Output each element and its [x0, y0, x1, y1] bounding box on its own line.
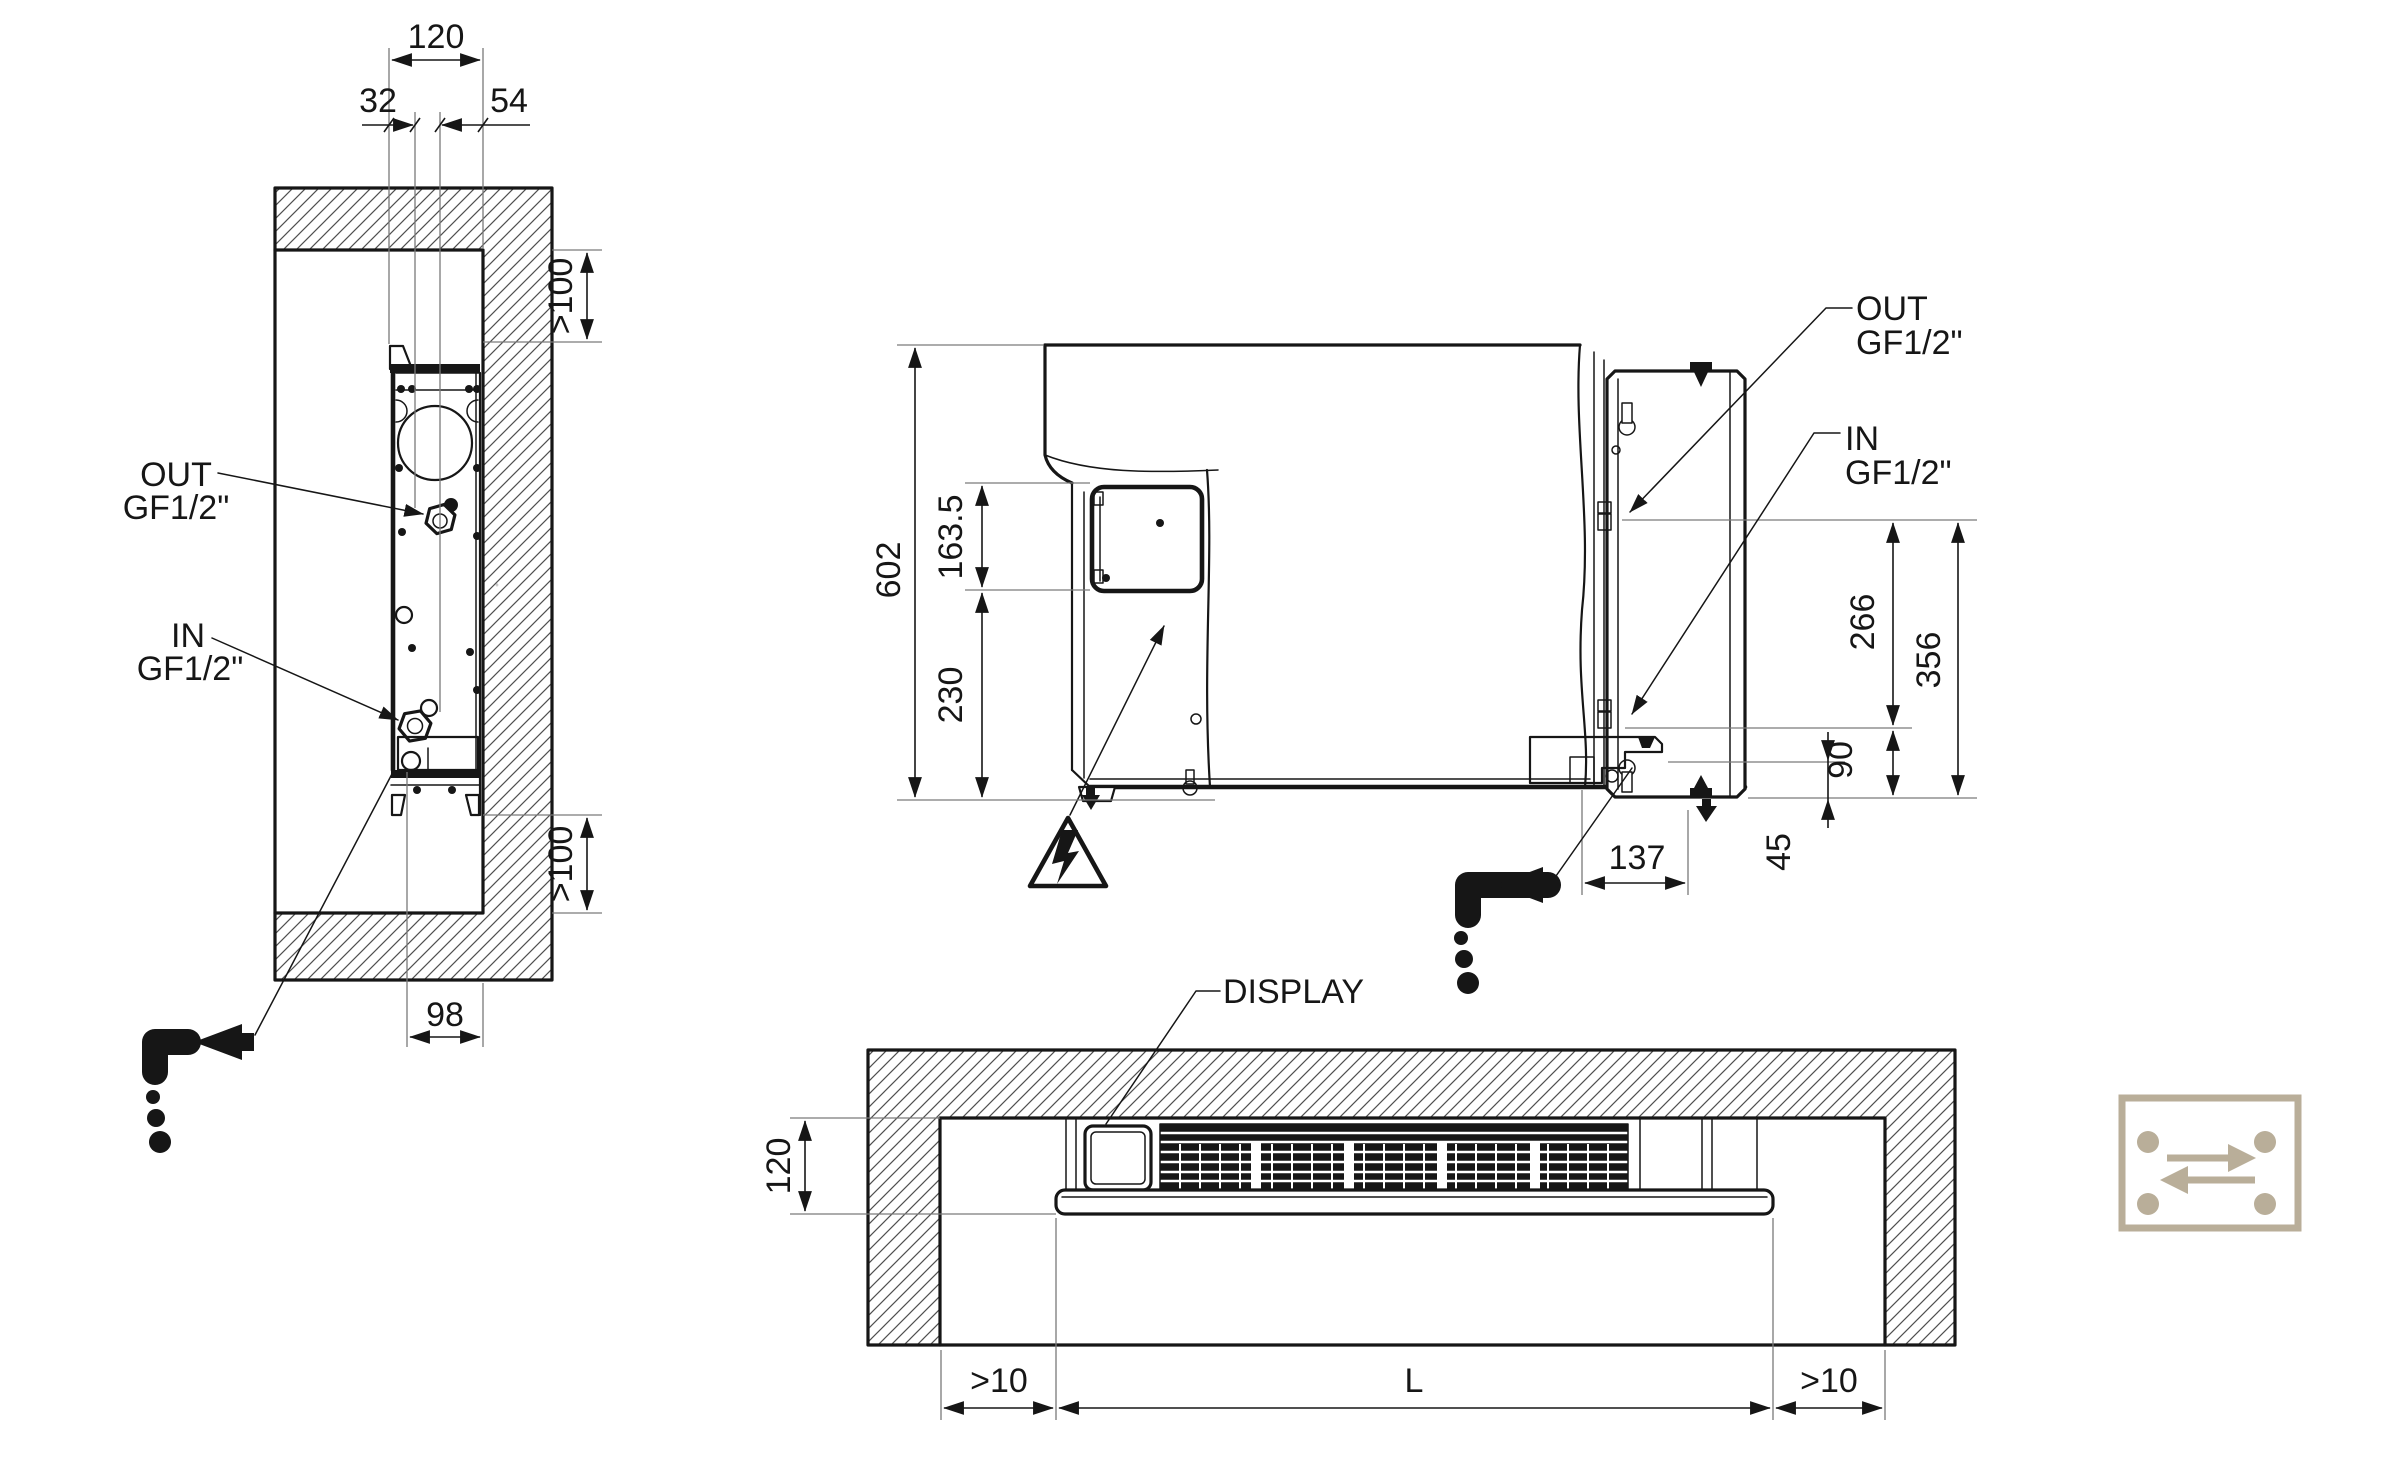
mounting-bracket	[1598, 362, 1745, 822]
break-line-right	[1578, 345, 1586, 787]
out-port-thread: GF1/2"	[123, 489, 230, 527]
in-pipe-circle	[421, 700, 437, 716]
dim-in-offset: 54	[490, 82, 528, 120]
front-panel-bar	[1056, 1190, 1773, 1214]
in-fitting-hex	[396, 706, 433, 746]
in-port-name: IN	[1845, 420, 1879, 458]
technical-drawing-canvas: 120 32 54 >100 >100 98 OUT GF1/2" IN GF1…	[0, 0, 2388, 1474]
dim-left-clearance: >10	[970, 1362, 1028, 1400]
dim-height: 602	[870, 542, 908, 599]
top-cap	[390, 364, 480, 373]
right-foot-arrow	[1696, 806, 1717, 822]
dim-bottom-clearance: >100	[542, 826, 580, 903]
dim-junction-box-bottom: 230	[932, 667, 970, 724]
dim-depth: 120	[408, 18, 465, 56]
dim-junction-box-height: 163.5	[932, 494, 970, 579]
pipe-knockout-hole	[398, 406, 472, 480]
dim-ports-span: 356	[1910, 632, 1948, 689]
in-port-thread: GF1/2"	[137, 650, 244, 688]
dim-recess-depth: 98	[426, 996, 464, 1034]
reversible-connections-icon	[2122, 1098, 2298, 1228]
display-box	[1085, 1126, 1151, 1190]
arrow-right-head	[2228, 1144, 2256, 1172]
base-rail	[391, 770, 480, 778]
front-view-dimensions: 602 163.5 230 266 90 356 45 137	[870, 345, 1977, 895]
dim-depth: 120	[760, 1138, 798, 1195]
right-foot	[466, 795, 479, 815]
electric-hazard-icon	[1030, 626, 1164, 886]
front-elevation-view: 602 163.5 230 266 90 356 45 137 OUT GF1/…	[870, 290, 1977, 994]
out-port-thread: GF1/2"	[1856, 324, 1963, 362]
screw-holes	[395, 385, 481, 694]
side-in-port-label: IN GF1/2"	[137, 617, 398, 720]
dim-drain-drop: 45	[1760, 833, 1798, 871]
side-section-view: 120 32 54 >100 >100 98 OUT GF1/2" IN GF1…	[123, 18, 602, 1153]
unit-plan	[1056, 1118, 1773, 1214]
clamp-screw-top	[1690, 362, 1712, 372]
out-port-name: OUT	[1856, 290, 1928, 328]
side-out-port-label: OUT GF1/2"	[123, 456, 423, 527]
condensate-drain-icon-front	[1454, 768, 1632, 994]
break-line-left	[1207, 470, 1210, 787]
display-text: DISPLAY	[1223, 973, 1364, 1011]
left-foot-arrow	[1082, 795, 1100, 810]
dim-unit-length: L	[1405, 1362, 1424, 1400]
in-port-thread: GF1/2"	[1845, 454, 1952, 492]
arrow-left-head	[2160, 1166, 2188, 1194]
wall-section	[275, 188, 552, 980]
air-grille	[1160, 1124, 1628, 1190]
dim-top-clearance: >100	[542, 258, 580, 335]
dim-right-clearance: >10	[1800, 1362, 1858, 1400]
dim-drain-offset: 137	[1609, 839, 1666, 877]
clamp-screw-bottom	[1690, 788, 1712, 798]
unit-side-profile	[390, 346, 497, 815]
dim-out-port-height: 266	[1844, 594, 1882, 651]
left-notch	[396, 400, 407, 422]
left-foot	[392, 795, 405, 815]
installation-drawing-page: 120 32 54 >100 >100 98 OUT GF1/2" IN GF1…	[0, 0, 2388, 1474]
plan-section-view: DISPLAY 120 >10 L >10	[760, 973, 1955, 1420]
dim-out-offset: 32	[359, 82, 397, 120]
